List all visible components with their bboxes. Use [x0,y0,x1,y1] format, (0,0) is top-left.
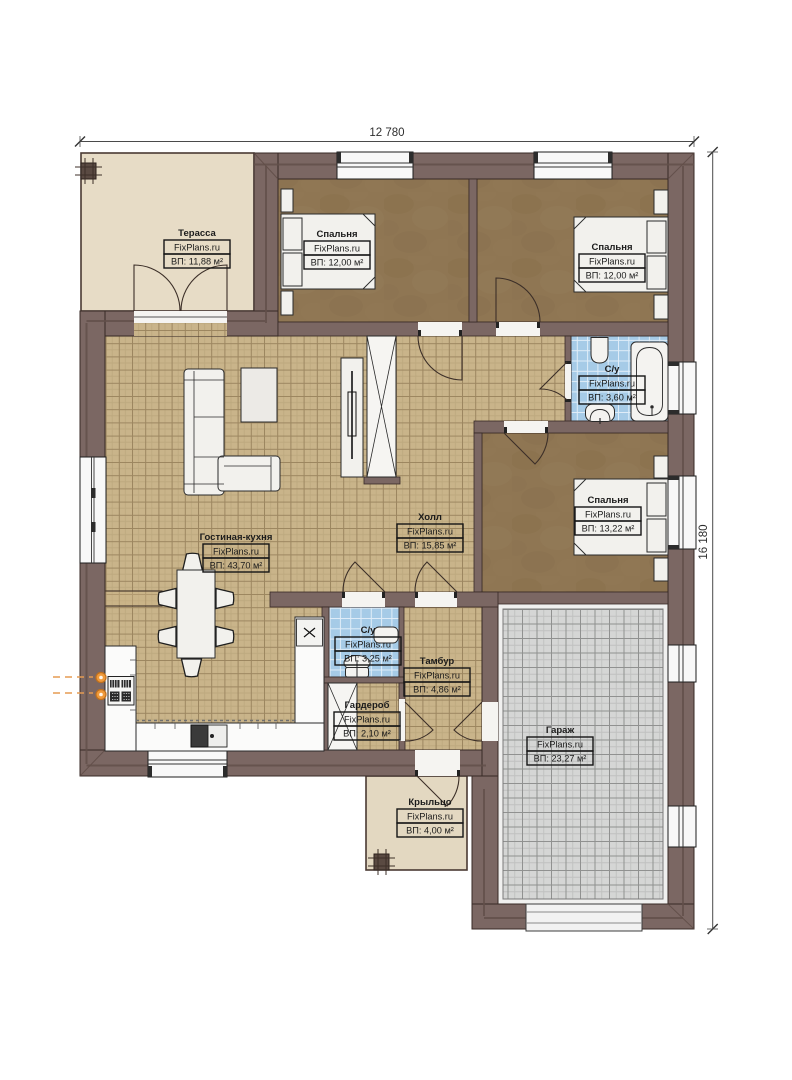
svg-text:FixPlans.ru: FixPlans.ru [344,715,390,725]
svg-text:ВП: 43,70 м²: ВП: 43,70 м² [210,561,263,571]
svg-text:FixPlans.ru: FixPlans.ru [213,547,259,557]
svg-text:16 180: 16 180 [698,524,710,559]
svg-text:С/у: С/у [605,364,621,375]
svg-text:Терасса: Терасса [178,228,216,239]
svg-text:Тамбур: Тамбур [420,656,455,667]
svg-text:Крыльцо: Крыльцо [408,797,451,808]
svg-text:Гардероб: Гардероб [345,700,390,711]
svg-text:FixPlans.ru: FixPlans.ru [537,740,583,750]
svg-text:ВП: 3,25 м²: ВП: 3,25 м² [344,654,392,664]
svg-text:ВП: 11,88 м²: ВП: 11,88 м² [171,257,223,267]
svg-text:ВП: 2,10 м²: ВП: 2,10 м² [343,729,391,739]
svg-text:Гостиная-кухня: Гостиная-кухня [200,532,273,543]
svg-text:FixPlans.ru: FixPlans.ru [414,671,460,681]
svg-text:ВП: 15,85 м²: ВП: 15,85 м² [404,541,457,551]
svg-text:FixPlans.ru: FixPlans.ru [345,640,391,650]
svg-text:Гараж: Гараж [546,725,575,736]
svg-text:12 780: 12 780 [369,127,404,139]
svg-text:FixPlans.ru: FixPlans.ru [174,243,220,253]
svg-text:Спальня: Спальня [591,242,632,253]
svg-text:ВП: 12,00 м²: ВП: 12,00 м² [586,271,639,281]
svg-text:ВП: 4,86 м²: ВП: 4,86 м² [413,685,461,695]
svg-text:ВП: 13,22 м²: ВП: 13,22 м² [582,524,635,534]
svg-text:FixPlans.ru: FixPlans.ru [407,812,453,822]
svg-text:ВП: 4,00 м²: ВП: 4,00 м² [406,826,454,836]
svg-text:FixPlans.ru: FixPlans.ru [585,510,631,520]
svg-text:Спальня: Спальня [316,229,357,240]
svg-text:FixPlans.ru: FixPlans.ru [407,527,453,537]
svg-text:Холл: Холл [418,512,442,523]
svg-text:С/у: С/у [361,625,377,636]
svg-text:ВП: 3,60 м²: ВП: 3,60 м² [588,393,636,403]
svg-text:FixPlans.ru: FixPlans.ru [589,257,635,267]
svg-text:Спальня: Спальня [587,495,628,506]
svg-text:FixPlans.ru: FixPlans.ru [314,244,360,254]
svg-text:ВП: 23,27 м²: ВП: 23,27 м² [534,754,587,764]
svg-text:FixPlans.ru: FixPlans.ru [589,379,635,389]
svg-text:ВП: 12,00 м²: ВП: 12,00 м² [311,258,364,268]
